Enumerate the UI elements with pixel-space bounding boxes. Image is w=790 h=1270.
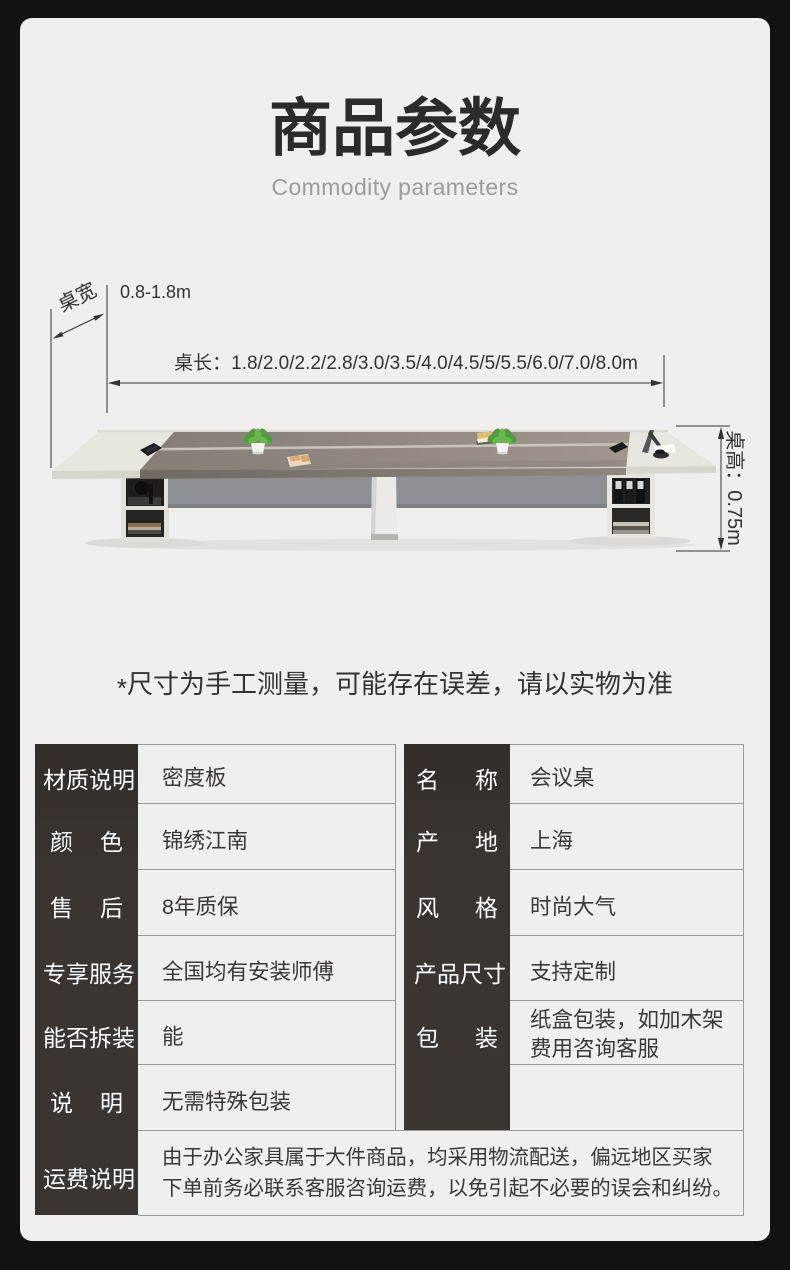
- svg-text:0.8-1.8m: 0.8-1.8m: [120, 282, 191, 302]
- svg-text:桌宽: 桌宽: [54, 278, 100, 316]
- svg-text:桌高：0.75m: 桌高：0.75m: [723, 430, 746, 546]
- svg-text:桌长：1.8/2.0/2.2/2.8/3.0/3.5/4.0: 桌长：1.8/2.0/2.2/2.8/3.0/3.5/4.0/4.5/5/5.5…: [174, 352, 638, 374]
